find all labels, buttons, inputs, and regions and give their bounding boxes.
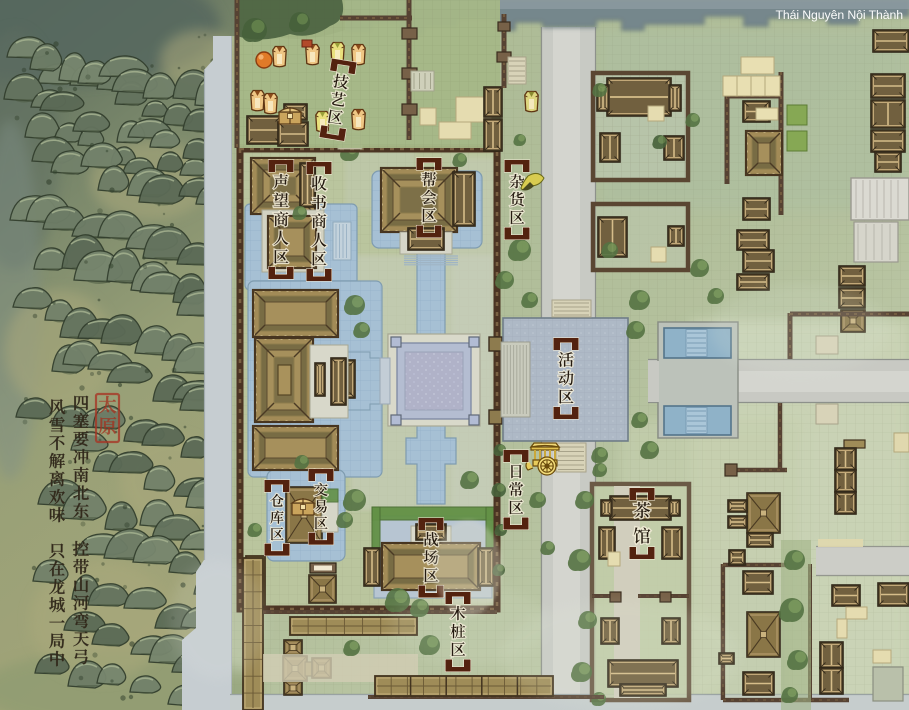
svg-text:Thái Nguyên Nội Thành: Thái Nguyên Nội Thành (775, 8, 903, 22)
